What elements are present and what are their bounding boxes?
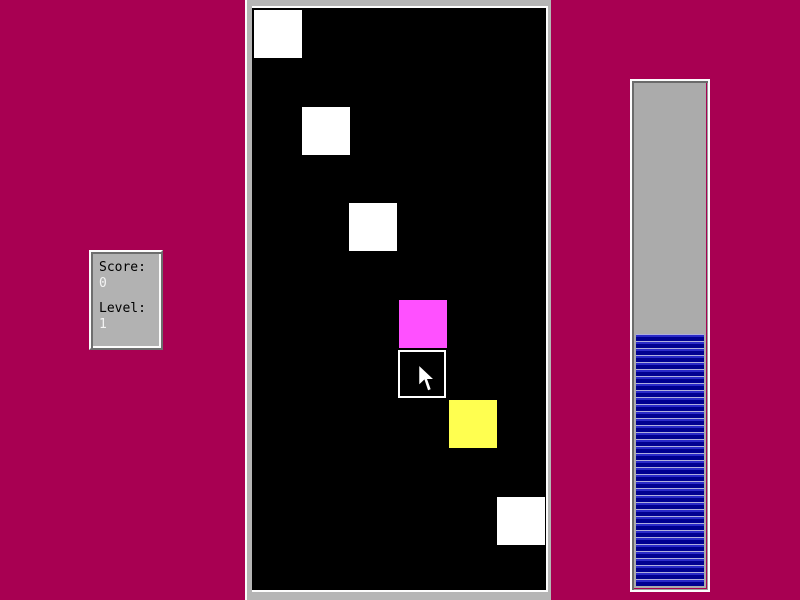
- game-block[interactable]: [449, 400, 497, 448]
- playfield-frame: [245, 0, 551, 600]
- progress-fill: [636, 334, 704, 587]
- playfield[interactable]: [252, 6, 548, 592]
- selected-cell[interactable]: [398, 350, 446, 398]
- progress-trough: [634, 83, 706, 588]
- score-panel-content: Score: 0 Level: 1: [95, 256, 157, 344]
- progress-bar: [630, 79, 710, 592]
- score-label: Score:: [99, 260, 153, 276]
- game-block[interactable]: [349, 203, 397, 251]
- level-value: 1: [99, 317, 153, 333]
- game-block[interactable]: [399, 300, 447, 348]
- game-block[interactable]: [497, 497, 545, 545]
- score-value: 0: [99, 276, 153, 292]
- score-panel: Score: 0 Level: 1: [89, 250, 163, 350]
- game-screen: Score: 0 Level: 1: [0, 0, 800, 600]
- game-block[interactable]: [302, 107, 350, 155]
- game-block[interactable]: [254, 10, 302, 58]
- level-label: Level:: [99, 301, 153, 317]
